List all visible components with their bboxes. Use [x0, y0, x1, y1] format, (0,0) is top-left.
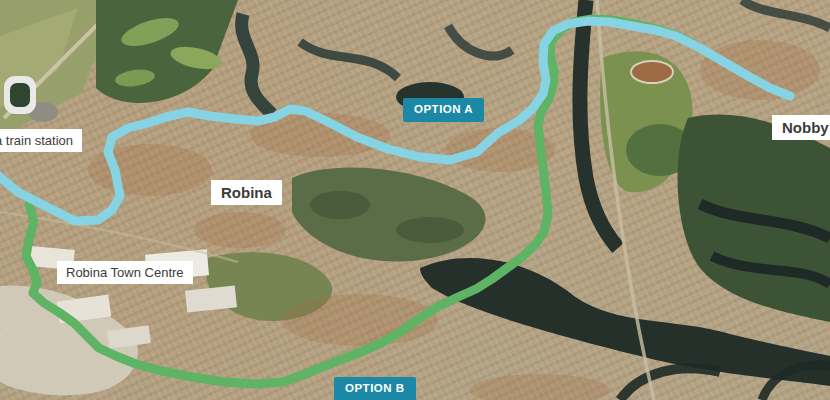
- badge-option-a: OPTION A: [403, 98, 484, 122]
- label-robina: Robina: [211, 180, 282, 205]
- label-nobby-beach: Nobby Be: [772, 115, 830, 140]
- badge-option-b: OPTION B: [334, 377, 416, 400]
- label-robina-town-centre: Robina Town Centre: [57, 261, 193, 284]
- satellite-basemap: [0, 0, 830, 400]
- label-train-station: a train station: [0, 129, 82, 152]
- satellite-map: a train station Robina Robina Town Centr…: [0, 0, 830, 400]
- terrain-layer: [0, 0, 830, 400]
